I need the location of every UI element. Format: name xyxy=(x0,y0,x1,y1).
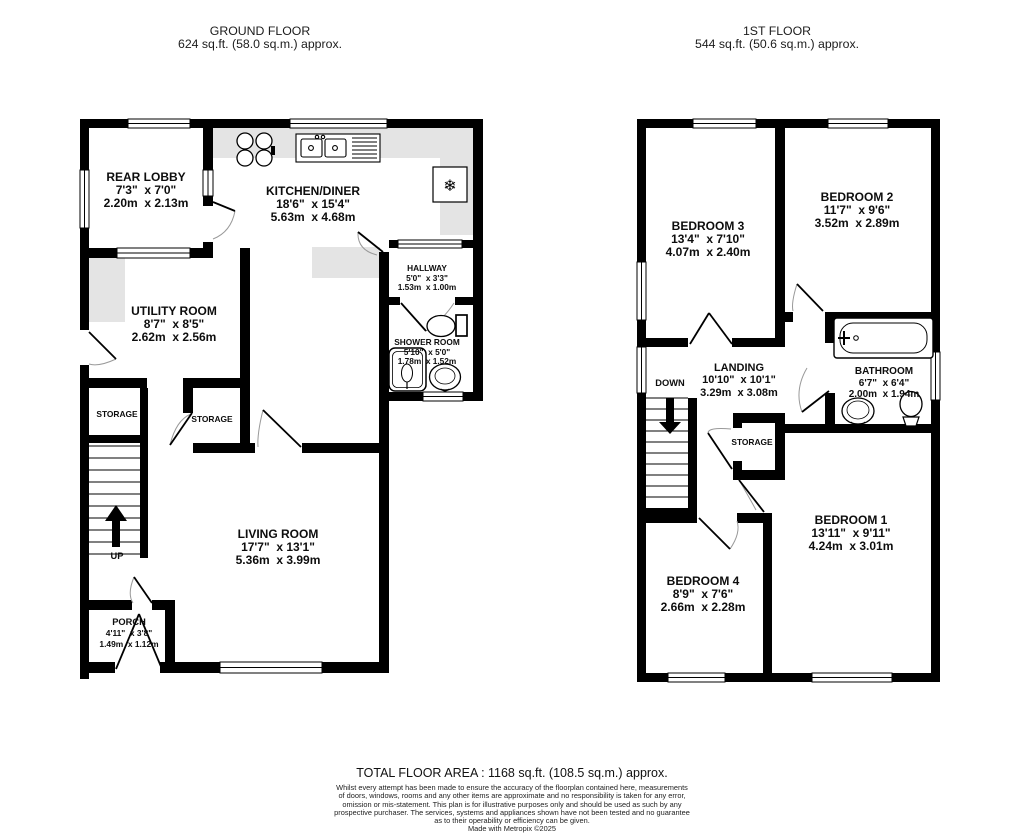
room-label-rear-lobby: REAR LOBBY 7'3" x 7'0" 2.20m x 2.13m xyxy=(104,171,189,211)
room-label-utility-room: UTILITY ROOM 8'7" x 8'5" 2.62m x 2.56m xyxy=(131,305,217,345)
room-label-kitchen-diner: KITCHEN/DINER 18'6" x 15'4" 5.63m x 4.68… xyxy=(266,185,360,225)
ground-floor-header: GROUND FLOOR 624 sq.ft. (58.0 sq.m.) app… xyxy=(178,25,342,50)
first-floor-area: 544 sq.ft. (50.6 sq.m.) approx. xyxy=(695,38,859,51)
room-label-hallway: HALLWAY 5'0" x 3'3" 1.53m x 1.00m xyxy=(398,264,457,293)
window xyxy=(931,352,940,400)
window xyxy=(423,392,463,401)
basin-icon xyxy=(430,364,461,391)
room-label-landing: LANDING 10'10" x 10'1" 3.29m x 3.08m xyxy=(700,362,778,399)
room-label-porch: PORCH 4'11" x 3'8" 1.49m x 1.12m xyxy=(99,617,158,649)
window xyxy=(828,119,888,128)
svg-text:❄: ❄ xyxy=(443,178,456,195)
sink-icon xyxy=(296,134,380,162)
ground-floor-title: GROUND FLOOR xyxy=(178,25,342,38)
disclaimer: Whilst every attempt has been made to en… xyxy=(334,784,690,834)
room-label-living-room: LIVING ROOM 17'7" x 13'1" 5.36m x 3.99m xyxy=(236,528,321,568)
total-floor-area: TOTAL FLOOR AREA : 1168 sq.ft. (108.5 sq… xyxy=(356,766,667,780)
floorplan-drawing: ❄ xyxy=(0,0,1024,834)
toilet-icon xyxy=(427,315,467,337)
room-label-bathroom: BATHROOM 6'7" x 6'4" 2.00m x 1.94m xyxy=(849,366,920,401)
window xyxy=(220,662,322,673)
room-label-bedroom-1: BEDROOM 1 13'11" x 9'11" 4.24m x 3.01m xyxy=(809,514,894,554)
room-label-bedroom-2: BEDROOM 2 11'7" x 9'6" 3.52m x 2.89m xyxy=(815,191,900,231)
bathtub-icon xyxy=(834,318,933,358)
utility-feature xyxy=(89,253,125,322)
window xyxy=(812,673,892,682)
window xyxy=(693,119,756,128)
storage-label: STORAGE xyxy=(731,437,772,447)
window xyxy=(290,119,387,128)
window xyxy=(637,347,646,393)
down-label: DOWN xyxy=(655,378,684,388)
basin-icon xyxy=(842,398,874,425)
up-label: UP xyxy=(111,551,124,561)
window xyxy=(203,170,213,196)
storage-label: STORAGE xyxy=(96,409,137,419)
first-floor-title: 1ST FLOOR xyxy=(695,25,859,38)
window xyxy=(637,262,646,320)
window xyxy=(668,673,725,682)
down-arrow-icon xyxy=(659,398,681,434)
room-label-shower-room: SHOWER ROOM 5'10" x 5'0" 1.78m x 1.52m xyxy=(394,338,459,367)
freezer-icon: ❄ xyxy=(433,167,467,202)
storage-label: STORAGE xyxy=(191,414,232,424)
room-label-bedroom-4: BEDROOM 4 8'9" x 7'6" 2.66m x 2.28m xyxy=(661,575,746,615)
window xyxy=(80,170,89,228)
window xyxy=(128,119,190,128)
window xyxy=(398,240,462,248)
room-label-bedroom-3: BEDROOM 3 13'4" x 7'10" 4.07m x 2.40m xyxy=(666,220,751,260)
floorplan-canvas: ❄ xyxy=(0,0,1024,834)
ground-floor-area: 624 sq.ft. (58.0 sq.m.) approx. xyxy=(178,38,342,51)
credit: Made with Metropix ©2025 xyxy=(334,825,690,833)
window xyxy=(117,248,190,258)
up-arrow-icon xyxy=(105,505,127,547)
first-floor-header: 1ST FLOOR 544 sq.ft. (50.6 sq.m.) approx… xyxy=(695,25,859,50)
